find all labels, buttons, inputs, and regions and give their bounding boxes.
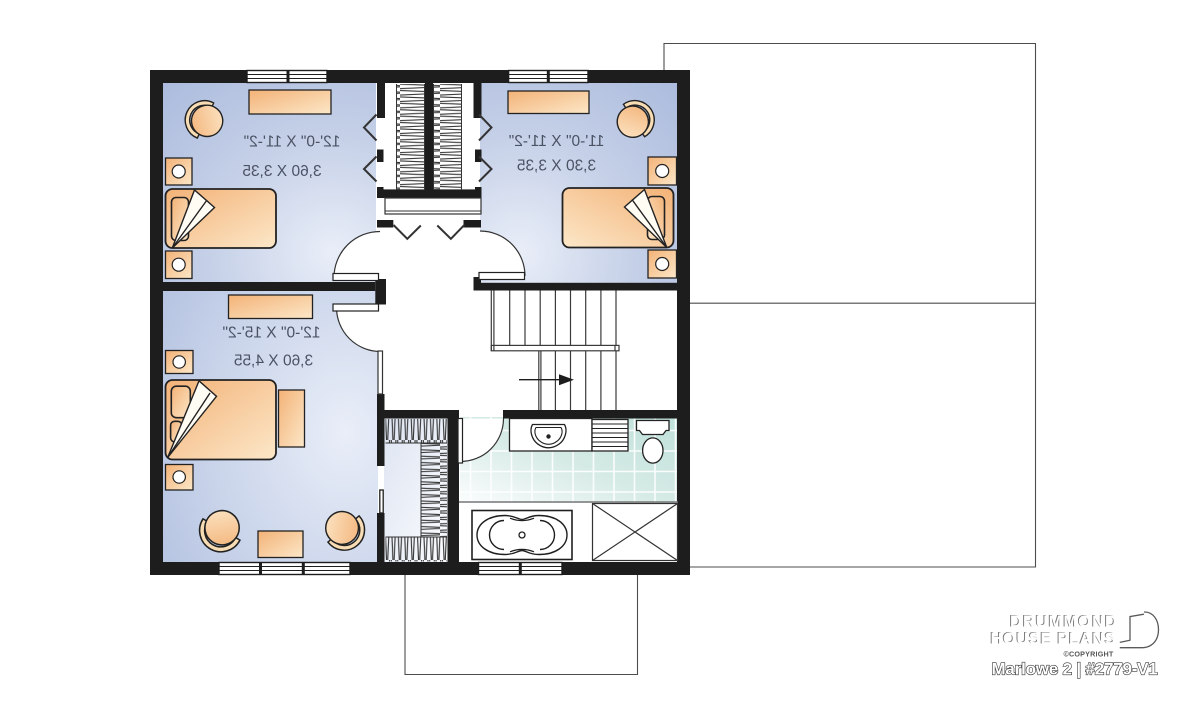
svg-text:DRUMMOND: DRUMMOND [1010, 613, 1118, 631]
svg-text:3,60 X 3,35: 3,60 X 3,35 [242, 163, 321, 180]
svg-text:©COPYRIGHT: ©COPYRIGHT [1063, 650, 1113, 659]
svg-text:HOUSE PLANS: HOUSE PLANS [991, 630, 1117, 648]
svg-text:12'-0" X 15'-2": 12'-0" X 15'-2" [223, 325, 321, 342]
svg-text:3,60 X 4,55: 3,60 X 4,55 [234, 353, 313, 370]
svg-text:12'-0" X 11'-2": 12'-0" X 11'-2" [244, 134, 341, 151]
svg-text:11'-0" X 11'-2": 11'-0" X 11'-2" [509, 133, 605, 150]
svg-text:3,30 X 3,35: 3,30 X 3,35 [517, 158, 596, 175]
svg-text:Marlowe 2 | #2779-V1: Marlowe 2 | #2779-V1 [991, 660, 1157, 679]
